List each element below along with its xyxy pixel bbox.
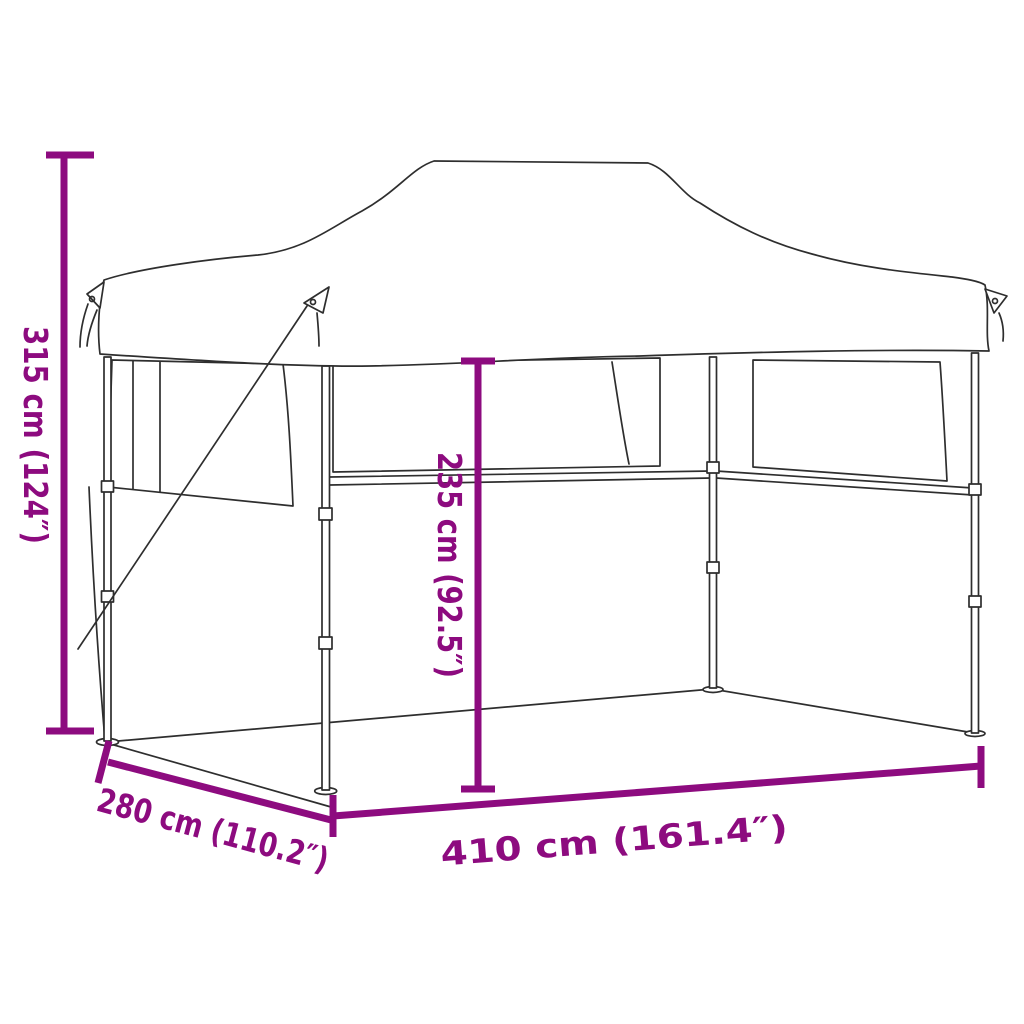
depth-label: 280 cm (110.2″) [93,780,333,879]
canopy-roof [99,161,989,366]
tent-line-art [78,161,1007,807]
length-label: 410 cm (161.4″) [439,807,789,873]
dimension-wall-height: 235 cm (92.5″) [430,361,495,789]
dimension-length: 410 cm (161.4″) [333,746,981,874]
tent-dimension-drawing: 315 cm (124″) 235 cm (92.5″) 410 cm (161… [0,0,1024,1024]
dimension-diagram: 315 cm (124″) 235 cm (92.5″) 410 cm (161… [0,0,1024,1024]
wall-height-label: 235 cm (92.5″) [430,452,469,678]
dimension-total-height: 315 cm (124″) [16,155,94,731]
back-left-sidewall [330,358,712,485]
back-right-sidewall [716,360,973,495]
front-left-sidewall [89,360,293,741]
ground-edges [107,689,974,807]
tent-legs [97,353,986,795]
total-height-label: 315 cm (124″) [16,326,55,544]
dimension-depth: 280 cm (110.2″) [93,741,333,880]
